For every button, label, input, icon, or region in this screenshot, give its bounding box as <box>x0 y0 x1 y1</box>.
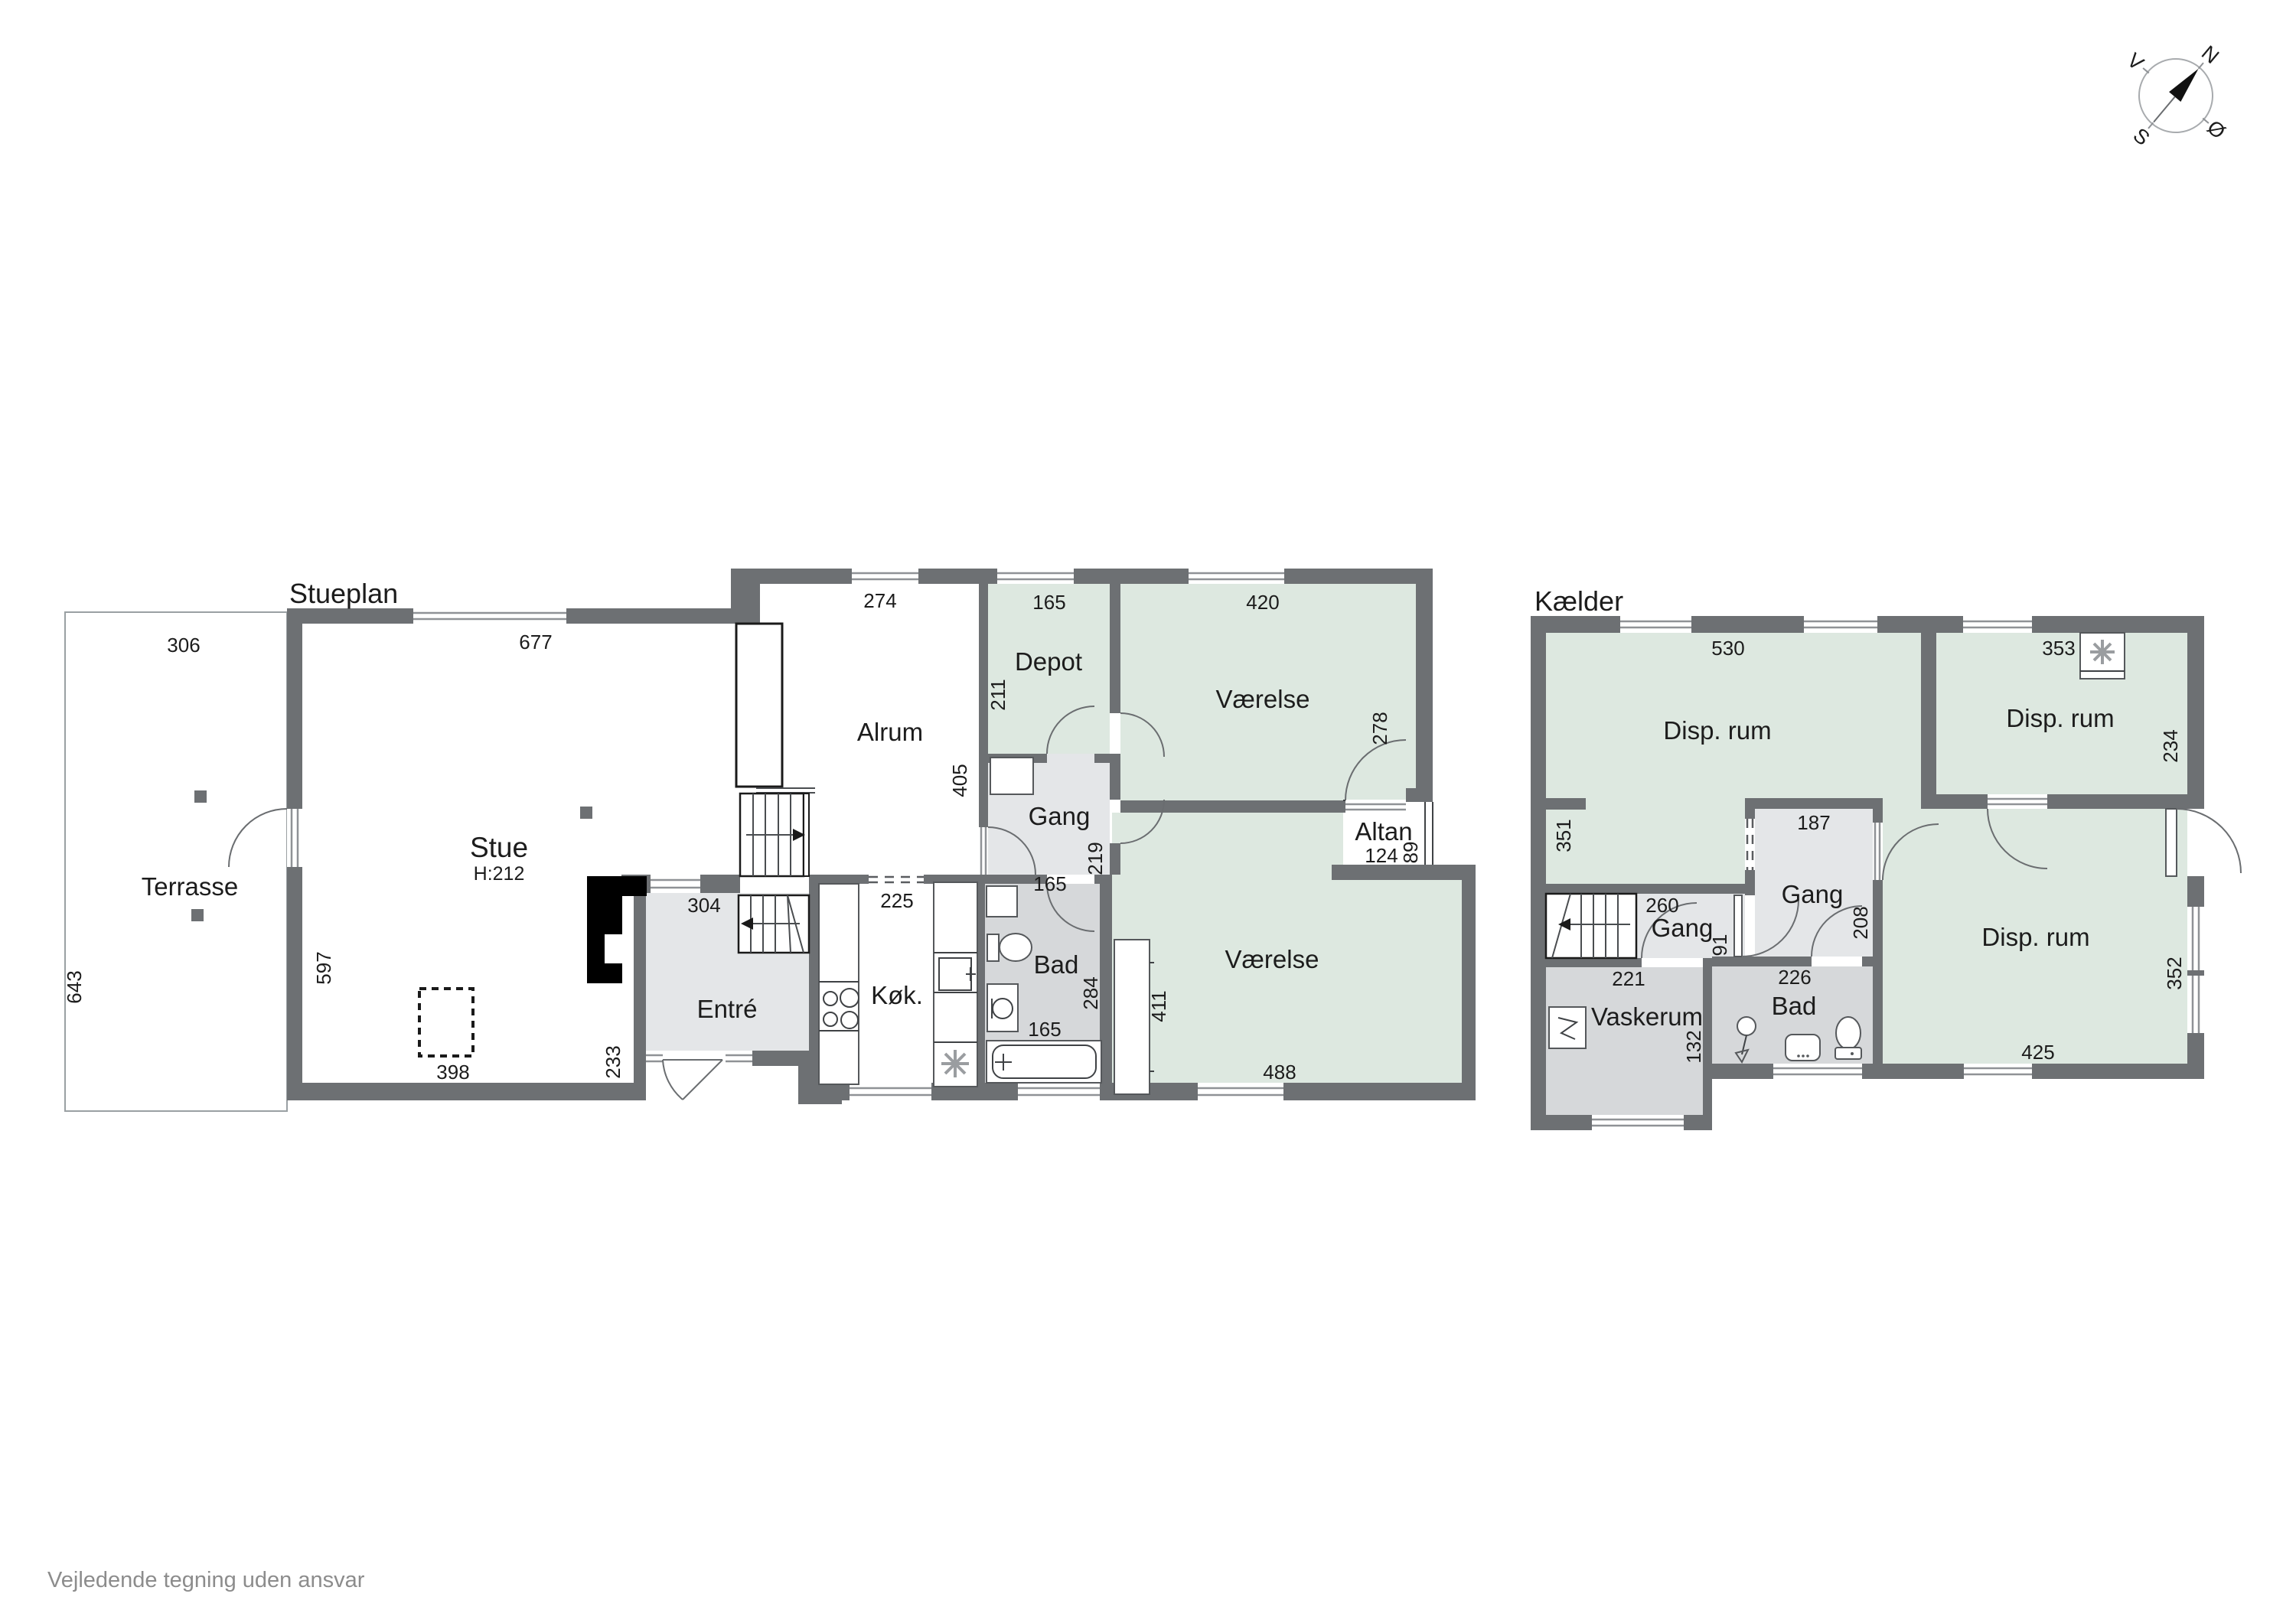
window-kaelder-nw2 <box>1804 616 1877 633</box>
dim-depot-depth: 211 <box>987 679 1009 710</box>
compass-west-label: V <box>2123 48 2148 75</box>
window-entre-south <box>646 1051 752 1066</box>
dim-disp-s-width: 425 <box>2021 1041 2054 1064</box>
dim-terrasse-width: 306 <box>167 634 200 657</box>
disclaimer-text: Vejledende tegning uden ansvar <box>47 1568 365 1592</box>
chimney-dashed <box>419 989 473 1056</box>
sink-icon <box>987 984 1018 1031</box>
dim-depot-width: 165 <box>1032 591 1065 614</box>
gang-cabinet <box>990 758 1033 794</box>
bathtub-icon <box>987 1041 1101 1083</box>
dim-alrum-width: 274 <box>863 589 896 612</box>
window-kaelder-ne <box>1963 616 2032 633</box>
stue-post <box>580 807 592 819</box>
dim-vaerelse-bottom-width: 488 <box>1263 1061 1296 1084</box>
room-label-bad: Bad <box>1034 950 1079 979</box>
room-label-kaelder-bad: Bad <box>1772 992 1817 1020</box>
opening-disp-nw-gang-n <box>1745 819 1755 870</box>
window-vaskerum-south <box>1592 1115 1684 1130</box>
room-label-terrasse: Terrasse <box>142 872 239 901</box>
compass: N Ø S V <box>2089 8 2265 184</box>
window-disp-s-south <box>1964 1064 2032 1079</box>
room-label-disp-s: Disp. rum <box>1981 923 2089 951</box>
stueplan-stairs <box>736 624 815 953</box>
room-label-disp-ne: Disp. rum <box>2006 704 2114 732</box>
dim-entre-depth: 233 <box>602 1045 625 1078</box>
dim-stue-chimney: 398 <box>436 1061 469 1084</box>
dim-alrum-opening: 225 <box>880 889 913 912</box>
door-kaelder-exterior <box>2166 809 2241 876</box>
fridge-icon <box>941 1050 969 1077</box>
room-label-vaerelse-bottom: Værelse <box>1225 945 1319 973</box>
window-disp-s-east <box>2187 907 2204 1033</box>
dim-bad-depth: 284 <box>1079 976 1102 1009</box>
window-depot-north <box>997 569 1074 584</box>
kaelder-stairs <box>1546 894 1636 958</box>
dim-altan-width: 124 <box>1365 844 1397 867</box>
window-entre-interior <box>651 875 700 893</box>
freezer-icon <box>2080 633 2125 679</box>
dim-gang-width: 165 <box>1033 872 1066 895</box>
opening-alrum-koekken <box>869 875 924 884</box>
terrasse-outline <box>65 612 287 1111</box>
room-label-depot: Depot <box>1015 647 1082 676</box>
room-label-alrum: Alrum <box>857 718 923 746</box>
laundry-sink-icon <box>1549 1007 1586 1048</box>
floorplan-drawing: Stueplan 306 643 Terrasse 597 677 Stue H… <box>0 0 2296 1623</box>
window-alrum-north <box>852 569 918 584</box>
dim-vaerelse-top-depth: 278 <box>1368 712 1391 745</box>
terrasse-post-1 <box>194 790 207 803</box>
stairs-up <box>740 794 809 876</box>
toilet-icon <box>987 934 1032 961</box>
room-label-gang-w: Gang <box>1652 914 1714 942</box>
room-label-vaerelse-top: Værelse <box>1216 685 1310 713</box>
window-kaelder-nw1 <box>1620 616 1691 633</box>
dim-kaelder-bad-width: 226 <box>1778 966 1811 989</box>
dim-disp-ne-depth: 234 <box>2159 729 2182 762</box>
kitchen-counter-left <box>819 884 859 1084</box>
floorplan-page: Stueplan 306 643 Terrasse 597 677 Stue H… <box>0 0 2296 1623</box>
dim-stue-wall: 597 <box>312 951 335 984</box>
window-vaerelse-north <box>1189 569 1284 584</box>
dim-bad-width: 165 <box>1028 1018 1061 1041</box>
stueplan-plan: Stueplan 306 643 Terrasse 597 677 Stue H… <box>63 569 1476 1111</box>
dim-altan-depth: 89 <box>1399 842 1422 864</box>
bad-cabinet <box>987 886 1017 917</box>
window-koekken-south <box>850 1083 931 1100</box>
dim-terrasse-depth: 643 <box>63 970 86 1003</box>
dim-vaskerum-width: 221 <box>1612 967 1645 990</box>
compass-south-label: S <box>2128 123 2154 150</box>
cabinet-tall <box>736 624 782 787</box>
kaelder-toilet-icon <box>1835 1017 1861 1059</box>
kaelder-title: Kælder <box>1534 585 1623 617</box>
window-bad-south <box>1018 1083 1100 1100</box>
kitchen-counter-right <box>934 882 977 1087</box>
dim-vaerelse-bottom-depth: 411 <box>1147 990 1170 1022</box>
compass-north-label: N <box>2197 41 2223 69</box>
room-label-disp-nw: Disp. rum <box>1663 716 1771 745</box>
room-label-gang: Gang <box>1029 802 1091 830</box>
window-stue-north <box>413 608 566 624</box>
kaelder-sink-icon <box>1786 1035 1820 1061</box>
dim-vaerelse-top-width: 420 <box>1246 591 1279 614</box>
dim-alrum-depth: 405 <box>948 764 971 797</box>
dim-gang-depth: 219 <box>1084 842 1107 875</box>
dim-stue-width: 677 <box>519 631 552 653</box>
dim-disp-ne-width: 353 <box>2042 637 2075 660</box>
room-label-vaskerum: Vaskerum <box>1591 1002 1703 1031</box>
dim-entre-width: 304 <box>687 894 720 917</box>
dim-gang-n-depth: 208 <box>1849 906 1872 939</box>
dim-disp-s-depth: 352 <box>2163 957 2186 989</box>
room-label-stue: Stue <box>470 832 528 863</box>
room-label-entre: Entré <box>697 995 758 1023</box>
window-vaerelse-south <box>1198 1083 1283 1100</box>
dim-vaskerum-depth: 132 <box>1682 1030 1705 1063</box>
room-label-gang-n: Gang <box>1782 880 1844 908</box>
compass-needle-icon <box>2169 64 2204 102</box>
dim-disp-nw-width: 530 <box>1711 637 1744 660</box>
dim-gang-n-width: 187 <box>1797 811 1830 834</box>
dim-gang-w-depth: 91 <box>1708 934 1731 957</box>
window-kaelder-bad-south <box>1773 1064 1862 1079</box>
stairs-down <box>739 895 809 953</box>
vaerelse-bottom-fill-right <box>1343 880 1462 1083</box>
kaelder-plan: Kælder 530 Disp. rum 351 353 Disp. rum 2… <box>1531 585 2241 1130</box>
terrasse-post-2 <box>191 909 204 921</box>
room-label-koekken: Køk. <box>871 981 923 1009</box>
dim-disp-nw-wall: 351 <box>1552 819 1575 852</box>
compass-east-label: Ø <box>2203 116 2229 143</box>
stueplan-title: Stueplan <box>289 578 398 609</box>
room-label-altan: Altan <box>1355 817 1412 846</box>
stue-ceiling-height: H:212 <box>474 863 525 885</box>
